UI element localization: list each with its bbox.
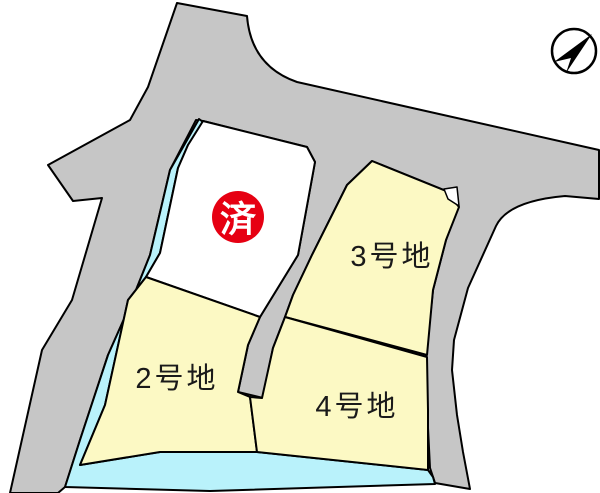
lot-3-label: 3号地 bbox=[350, 240, 433, 273]
lot-map: 済 2号地 3号地 4号地 bbox=[0, 0, 600, 493]
sold-badge-label: 済 bbox=[220, 199, 256, 240]
north-arrow-icon bbox=[552, 29, 596, 73]
plot-map-svg: 済 2号地 3号地 4号地 bbox=[0, 0, 600, 493]
lot-2-label: 2号地 bbox=[135, 362, 218, 395]
lot-4-label: 4号地 bbox=[315, 390, 398, 423]
